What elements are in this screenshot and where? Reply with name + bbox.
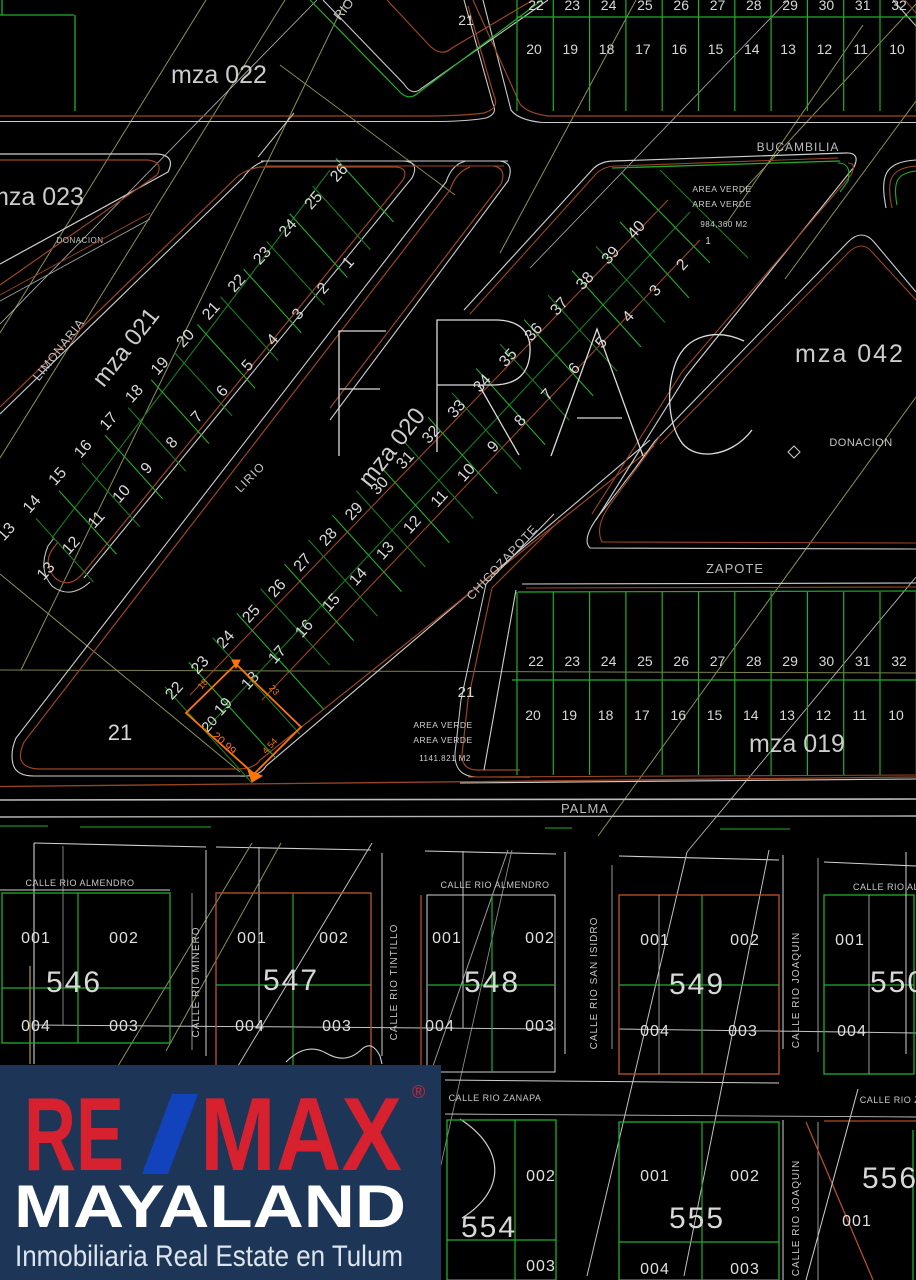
svg-text:mza 023: mza 023 [0, 183, 84, 211]
svg-text:548: 548 [464, 966, 520, 999]
svg-text:PALMA: PALMA [561, 801, 609, 816]
svg-text:15: 15 [708, 41, 724, 57]
svg-text:CALLE RIO AL: CALLE RIO AL [853, 882, 916, 892]
svg-text:30: 30 [819, 653, 835, 669]
svg-text:Inmobiliaria Real Estate en Tu: Inmobiliaria Real Estate en Tulum [15, 1240, 403, 1273]
svg-text:004: 004 [640, 1261, 670, 1278]
svg-text:29: 29 [782, 653, 798, 669]
svg-text:002: 002 [319, 930, 349, 947]
svg-text:16: 16 [670, 707, 686, 723]
svg-text:13: 13 [779, 707, 795, 723]
svg-text:25: 25 [637, 653, 653, 669]
svg-text:13: 13 [780, 41, 796, 57]
svg-text:28: 28 [746, 0, 762, 13]
svg-text:555: 555 [669, 1202, 725, 1235]
svg-text:CALLE RIO JOAQUIN: CALLE RIO JOAQUIN [791, 1160, 802, 1276]
svg-text:15: 15 [707, 707, 723, 723]
svg-text:30: 30 [819, 0, 835, 13]
svg-text:10: 10 [889, 41, 905, 57]
svg-text:19: 19 [563, 41, 579, 57]
svg-text:CALLE RIO TINTILLO: CALLE RIO TINTILLO [389, 924, 400, 1041]
svg-text:004: 004 [235, 1018, 265, 1035]
svg-text:002: 002 [526, 1168, 556, 1185]
svg-text:21: 21 [458, 684, 475, 701]
svg-text:549: 549 [669, 968, 725, 1001]
svg-text:21: 21 [458, 12, 474, 28]
svg-text:21: 21 [108, 720, 132, 745]
svg-text:24: 24 [601, 0, 617, 13]
svg-text:20: 20 [525, 707, 541, 723]
svg-text:001: 001 [21, 930, 51, 947]
svg-text:003: 003 [728, 1023, 758, 1040]
svg-text:AREA VERDE: AREA VERDE [413, 735, 472, 745]
svg-text:DONACION: DONACION [829, 437, 892, 449]
svg-text:554: 554 [461, 1211, 517, 1244]
svg-text:18: 18 [599, 41, 615, 57]
svg-text:CALLE RIO ZANAPA: CALLE RIO ZANAPA [449, 1093, 542, 1103]
svg-text:mza 019: mza 019 [749, 730, 845, 758]
svg-text:mza 022: mza 022 [171, 61, 267, 89]
svg-text:AREA VERDE: AREA VERDE [692, 199, 751, 209]
svg-text:mza 042: mza 042 [795, 340, 905, 368]
svg-text:16: 16 [671, 41, 687, 57]
svg-text:26: 26 [673, 0, 689, 13]
svg-text:29: 29 [782, 0, 798, 13]
svg-text:23: 23 [565, 653, 581, 669]
svg-text:22: 22 [528, 0, 544, 13]
svg-text:26: 26 [673, 653, 689, 669]
svg-text:004: 004 [837, 1023, 867, 1040]
svg-text:CALLE RIO SAN ISIDRO: CALLE RIO SAN ISIDRO [589, 917, 600, 1050]
svg-text:001: 001 [842, 1213, 872, 1230]
svg-text:10: 10 [888, 707, 904, 723]
svg-text:BUCAMBILIA: BUCAMBILIA [757, 140, 840, 154]
svg-text:MAYALAND: MAYALAND [14, 1173, 406, 1240]
svg-text:1141.821 M2: 1141.821 M2 [419, 754, 471, 763]
svg-text:22: 22 [528, 653, 544, 669]
svg-text:32: 32 [891, 653, 907, 669]
svg-text:25: 25 [637, 0, 653, 13]
svg-text:27: 27 [710, 653, 726, 669]
svg-text:24: 24 [601, 653, 617, 669]
svg-text:17: 17 [635, 41, 651, 57]
svg-text:CALLE RIO MINERO: CALLE RIO MINERO [191, 926, 202, 1037]
svg-text:14: 14 [743, 707, 759, 723]
svg-text:28: 28 [746, 653, 762, 669]
svg-text:11: 11 [852, 707, 867, 723]
svg-text:CALLE RIO JOAQUIN: CALLE RIO JOAQUIN [791, 932, 802, 1048]
svg-text:004: 004 [21, 1018, 51, 1035]
svg-text:001: 001 [835, 932, 865, 949]
svg-text:002: 002 [730, 1168, 760, 1185]
svg-text:®: ® [412, 1082, 425, 1102]
svg-text:001: 001 [237, 930, 267, 947]
svg-text:003: 003 [526, 1258, 556, 1275]
svg-text:ZAPOTE: ZAPOTE [706, 561, 764, 576]
svg-text:002: 002 [525, 930, 555, 947]
svg-text:003: 003 [730, 1261, 760, 1278]
svg-text:DONACION: DONACION [56, 236, 103, 245]
svg-text:003: 003 [109, 1018, 139, 1035]
svg-text:12: 12 [817, 41, 833, 57]
svg-text:003: 003 [525, 1018, 555, 1035]
svg-text:17: 17 [634, 707, 650, 723]
svg-text:547: 547 [263, 964, 319, 997]
svg-text:32: 32 [891, 0, 907, 13]
svg-text:CALLE RIO ALMENDRO: CALLE RIO ALMENDRO [440, 880, 549, 890]
svg-text:AREA VERDE: AREA VERDE [413, 720, 472, 730]
svg-text:14: 14 [744, 41, 760, 57]
svg-text:004: 004 [640, 1023, 670, 1040]
svg-text:001: 001 [432, 930, 462, 947]
svg-text:27: 27 [710, 0, 726, 13]
svg-text:19: 19 [562, 707, 578, 723]
svg-text:23: 23 [565, 0, 581, 13]
svg-text:004: 004 [425, 1018, 455, 1035]
svg-text:31: 31 [855, 0, 871, 13]
svg-text:CALLE RIO Z: CALLE RIO Z [860, 1095, 916, 1105]
svg-text:CALLE RIO ALMENDRO: CALLE RIO ALMENDRO [25, 878, 134, 888]
svg-text:20: 20 [526, 41, 542, 57]
svg-text:1: 1 [705, 236, 711, 247]
svg-text:31: 31 [855, 653, 871, 669]
svg-text:18: 18 [598, 707, 614, 723]
svg-text:002: 002 [109, 930, 139, 947]
svg-text:001: 001 [640, 1168, 670, 1185]
svg-text:556: 556 [862, 1162, 916, 1195]
svg-text:003: 003 [322, 1018, 352, 1035]
svg-text:AREA VERDE: AREA VERDE [692, 184, 751, 194]
svg-text:12: 12 [816, 707, 832, 723]
svg-text:984,360 M2: 984,360 M2 [700, 220, 747, 229]
svg-text:001: 001 [640, 932, 670, 949]
svg-text:002: 002 [730, 932, 760, 949]
svg-text:11: 11 [853, 41, 868, 57]
svg-text:546: 546 [46, 966, 102, 999]
svg-text:550: 550 [870, 966, 916, 999]
